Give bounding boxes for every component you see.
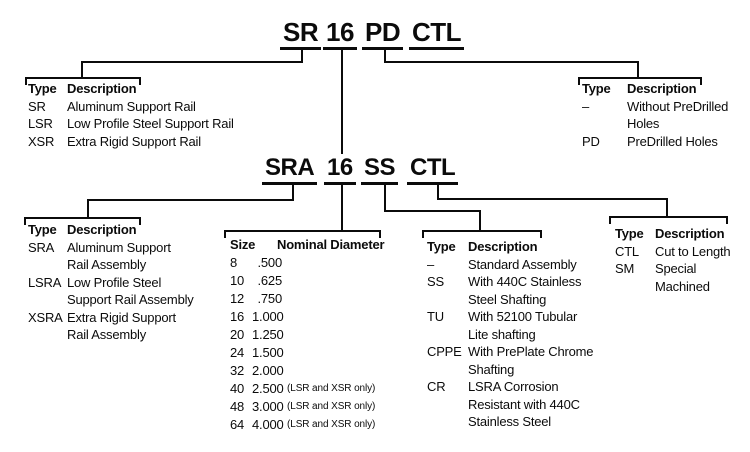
size-code: 16 — [230, 308, 252, 326]
connector-ctl-drop2 — [666, 198, 668, 218]
table-row: LSRA Low Profile Steel Support Rail Asse… — [28, 274, 194, 309]
type-description: Low Profile Steel Support Rail — [67, 115, 234, 133]
top-code-rail-type: SR — [280, 20, 321, 50]
table-row: SS With 440C Stainless Steel Shafting — [427, 273, 593, 308]
column-header-size: Size — [230, 236, 277, 254]
type-description: Low Profile Steel Support Rail Assembly — [67, 274, 194, 309]
type-code: XSR — [28, 133, 67, 151]
bracket-rail-type-tick-left — [25, 77, 27, 85]
size-code: 24 — [230, 344, 252, 362]
diameter-value: 2.500 — [252, 380, 282, 398]
table-row: 241.500 — [230, 344, 384, 362]
bracket-assembly-type — [24, 217, 141, 219]
table-row: 402.500(LSR and XSR only) — [230, 380, 384, 398]
type-description: Cut to Length — [655, 243, 730, 261]
connector-size-shared — [341, 47, 343, 154]
table-row: 161.000 — [230, 308, 384, 326]
diameter-value: 1.500 — [252, 344, 282, 362]
table-shafting: Type Description – Standard Assembly SS … — [427, 238, 593, 431]
type-code: XSRA — [28, 309, 67, 344]
type-description: PreDrilled Holes — [627, 133, 718, 151]
connector-pd-horizontal — [384, 61, 639, 63]
table-row: 201.250 — [230, 326, 384, 344]
size-code: 12 — [230, 290, 252, 308]
bracket-predrill — [578, 77, 702, 79]
diameter-value: 2.000 — [252, 362, 282, 380]
size-restriction-note: (LSR and XSR only) — [282, 416, 375, 434]
bottom-code-size: 16 — [324, 155, 356, 185]
bracket-size — [224, 230, 381, 232]
type-description: Extra Rigid Support Rail — [67, 133, 201, 151]
diameter-value: .750 — [252, 290, 282, 308]
table-row: SRA Aluminum Support Rail Assembly — [28, 239, 194, 274]
type-code: SS — [427, 273, 468, 308]
type-code: LSRA — [28, 274, 67, 309]
table-row: 322.000 — [230, 362, 384, 380]
size-restriction-note: (LSR and XSR only) — [282, 398, 375, 416]
type-code: CPPE — [427, 343, 468, 378]
type-code: TU — [427, 308, 468, 343]
diameter-value: 4.000 — [252, 416, 282, 434]
diameter-value: 3.000 — [252, 398, 282, 416]
column-header-type: Type — [582, 80, 627, 98]
column-header-description: Description — [67, 221, 136, 239]
bracket-length-tick-left — [609, 216, 611, 224]
bottom-code-length: CTL — [407, 155, 458, 185]
bracket-length-tick-right — [726, 216, 728, 224]
column-header-description: Description — [627, 80, 696, 98]
table-rail-type: Type Description SR Aluminum Support Rai… — [28, 80, 234, 150]
table-row: XSR Extra Rigid Support Rail — [28, 133, 234, 151]
table-row: LSR Low Profile Steel Support Rail — [28, 115, 234, 133]
connector-sra-horizontal — [87, 199, 294, 201]
type-code: LSR — [28, 115, 67, 133]
connector-sr-drop2 — [81, 61, 83, 78]
bracket-predrill-tick-left — [578, 77, 580, 85]
type-description: Without PreDrilled Holes — [627, 98, 728, 133]
table-row: CR LSRA Corrosion Resistant with 440C St… — [427, 378, 593, 431]
size-restriction-note: (LSR and XSR only) — [282, 380, 375, 398]
table-row: CTL Cut to Length — [615, 243, 730, 261]
size-code: 8 — [230, 254, 252, 272]
type-code: SM — [615, 260, 655, 295]
size-code: 32 — [230, 362, 252, 380]
type-code: SR — [28, 98, 67, 116]
type-code: – — [582, 98, 627, 133]
bracket-shafting — [422, 230, 542, 232]
table-assembly-type: Type Description SRA Aluminum Support Ra… — [28, 221, 194, 344]
column-header-nominal-diameter: Nominal Diameter — [277, 236, 384, 254]
column-header-type: Type — [28, 80, 67, 98]
bracket-rail-type — [25, 77, 141, 79]
connector-sra-drop2 — [87, 199, 89, 218]
column-header-description: Description — [468, 238, 537, 256]
connector-ss-drop — [384, 184, 386, 212]
size-code: 10 — [230, 272, 252, 290]
table-size: Size Nominal Diameter 8.500 10.625 12.75… — [230, 236, 384, 434]
table-row: 12.750 — [230, 290, 384, 308]
part-numbering-diagram: SR 16 PD CTL SRA 16 SS CTL Type — [0, 0, 750, 452]
bracket-assembly-type-tick-left — [24, 217, 26, 225]
type-description: Special Machined — [655, 260, 710, 295]
table-row: SM Special Machined — [615, 260, 730, 295]
type-description: Aluminum Support Rail — [67, 98, 196, 116]
bracket-size-tick-left — [224, 230, 226, 238]
connector-pd-drop2 — [637, 61, 639, 78]
table-row: 8.500 — [230, 254, 384, 272]
top-code-size: 16 — [323, 20, 357, 50]
connector-size-drop — [341, 184, 343, 232]
type-description: With PrePlate Chrome Shafting — [468, 343, 593, 378]
type-code: PD — [582, 133, 627, 151]
column-header-description: Description — [67, 80, 136, 98]
type-description: Extra Rigid Support Rail Assembly — [67, 309, 176, 344]
type-code: SRA — [28, 239, 67, 274]
table-row: CPPE With PrePlate Chrome Shafting — [427, 343, 593, 378]
size-code: 48 — [230, 398, 252, 416]
bottom-code-shafting: SS — [361, 155, 398, 185]
column-header-type: Type — [28, 221, 67, 239]
size-code: 64 — [230, 416, 252, 434]
table-row: 644.000(LSR and XSR only) — [230, 416, 384, 434]
type-description: With 52100 Tubular Lite shafting — [468, 308, 577, 343]
connector-ss-drop2 — [479, 210, 481, 232]
top-code-length: CTL — [409, 20, 464, 50]
size-code: 20 — [230, 326, 252, 344]
bracket-shafting-tick-left — [422, 230, 424, 238]
type-code: – — [427, 256, 468, 274]
type-code: CR — [427, 378, 468, 431]
table-row: XSRA Extra Rigid Support Rail Assembly — [28, 309, 194, 344]
table-length: Type Description CTL Cut to Length SM Sp… — [615, 225, 730, 295]
bracket-length — [609, 216, 728, 218]
diameter-value: .625 — [252, 272, 282, 290]
type-description: LSRA Corrosion Resistant with 440C Stain… — [468, 378, 580, 431]
table-row: – Without PreDrilled Holes — [582, 98, 728, 133]
top-code-predrill: PD — [362, 20, 403, 50]
connector-ss-horizontal — [384, 210, 481, 212]
diameter-value: .500 — [252, 254, 282, 272]
table-predrill: Type Description – Without PreDrilled Ho… — [582, 80, 728, 150]
type-code: CTL — [615, 243, 655, 261]
bottom-code-assembly-type: SRA — [262, 155, 317, 185]
type-description: Aluminum Support Rail Assembly — [67, 239, 171, 274]
size-code: 40 — [230, 380, 252, 398]
type-description: With 440C Stainless Steel Shafting — [468, 273, 581, 308]
table-row: TU With 52100 Tubular Lite shafting — [427, 308, 593, 343]
diameter-value: 1.000 — [252, 308, 282, 326]
column-header-type: Type — [427, 238, 468, 256]
table-row: SR Aluminum Support Rail — [28, 98, 234, 116]
table-row: 483.000(LSR and XSR only) — [230, 398, 384, 416]
table-row: 10.625 — [230, 272, 384, 290]
table-row: PD PreDrilled Holes — [582, 133, 728, 151]
column-header-description: Description — [655, 225, 724, 243]
connector-sr-horizontal — [81, 61, 303, 63]
connector-ctl-horizontal — [437, 198, 668, 200]
type-description: Standard Assembly — [468, 256, 577, 274]
bracket-shafting-tick-right — [540, 230, 542, 238]
table-row: – Standard Assembly — [427, 256, 593, 274]
column-header-type: Type — [615, 225, 655, 243]
diameter-value: 1.250 — [252, 326, 282, 344]
